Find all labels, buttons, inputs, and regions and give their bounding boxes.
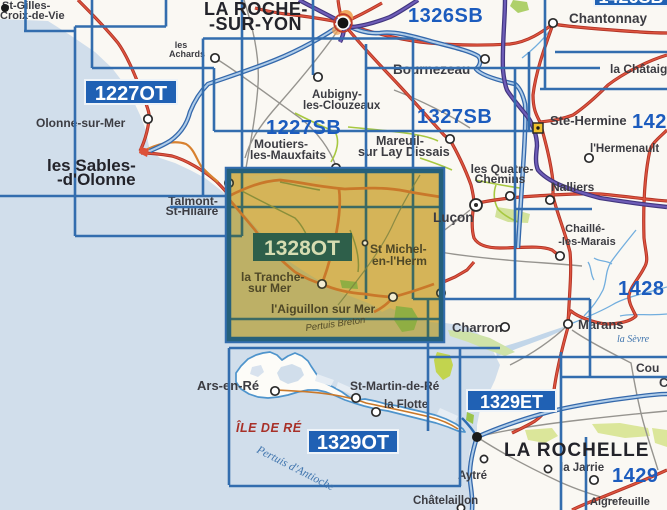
svg-text:1327SB: 1327SB [417, 106, 492, 128]
svg-text:l'Hermenault: l'Hermenault [590, 143, 659, 155]
svg-text:la Flotte: la Flotte [384, 399, 428, 411]
svg-text:ÎLE DE RÉ: ÎLE DE RÉ [236, 420, 302, 435]
svg-text:Marans: Marans [578, 317, 624, 332]
svg-text:1426SB: 1426SB [598, 0, 663, 7]
svg-text:les-Mauxfaits: les-Mauxfaits [250, 148, 326, 162]
svg-text:1329ET: 1329ET [480, 392, 543, 412]
svg-text:-les-Marais: -les-Marais [558, 236, 615, 248]
svg-text:Achards: Achards [169, 49, 205, 59]
svg-text:Aigrefeuille: Aigrefeuille [590, 496, 650, 508]
svg-text:1329OT: 1329OT [317, 432, 389, 454]
svg-text:Charron: Charron [452, 320, 503, 335]
svg-text:1428: 1428 [618, 278, 665, 300]
svg-text:Bournezeau: Bournezeau [393, 62, 470, 77]
svg-text:la Sèvre: la Sèvre [617, 334, 650, 345]
svg-text:Ste-Hermine: Ste-Hermine [550, 113, 627, 128]
svg-text:1227OT: 1227OT [95, 83, 167, 105]
svg-text:l'Aiguillon sur Mer: l'Aiguillon sur Mer [271, 302, 376, 316]
svg-text:sur Lay Dissais: sur Lay Dissais [358, 145, 450, 159]
svg-text:1429: 1429 [612, 465, 659, 487]
svg-text:St-Martin-de-Ré: St-Martin-de-Ré [350, 379, 440, 393]
svg-text:la Châtaign: la Châtaign [610, 62, 667, 76]
svg-text:Nalliers: Nalliers [551, 180, 595, 194]
svg-text:en-l'Herm: en-l'Herm [372, 254, 427, 268]
svg-text:Chantonnay: Chantonnay [569, 11, 647, 26]
svg-text:Croix-de-Vie: Croix-de-Vie [0, 10, 65, 22]
svg-text:Olonne-sur-Mer: Olonne-sur-Mer [36, 116, 126, 130]
svg-text:1328OT: 1328OT [264, 237, 340, 260]
svg-text:Chemins: Chemins [475, 172, 526, 186]
svg-text:1227SB: 1227SB [266, 117, 341, 139]
svg-text:Châtelaillon: Châtelaillon [413, 495, 478, 507]
svg-text:-SUR-YON: -SUR-YON [209, 14, 302, 34]
svg-text:Aytré: Aytré [458, 470, 487, 482]
svg-text:1326SB: 1326SB [408, 5, 483, 27]
svg-text:sur Mer: sur Mer [248, 281, 292, 295]
svg-text:Chaillé-: Chaillé- [565, 223, 605, 235]
svg-text:la Jarrie: la Jarrie [560, 462, 604, 474]
svg-text:LA ROCHELLE: LA ROCHELLE [504, 440, 649, 461]
svg-text:142: 142 [632, 111, 667, 133]
svg-text:Luçon: Luçon [433, 210, 474, 225]
svg-text:Cou: Cou [636, 361, 659, 375]
svg-text:les-Clouzeaux: les-Clouzeaux [303, 100, 381, 112]
svg-text:-d'Olonne: -d'Olonne [57, 170, 136, 189]
